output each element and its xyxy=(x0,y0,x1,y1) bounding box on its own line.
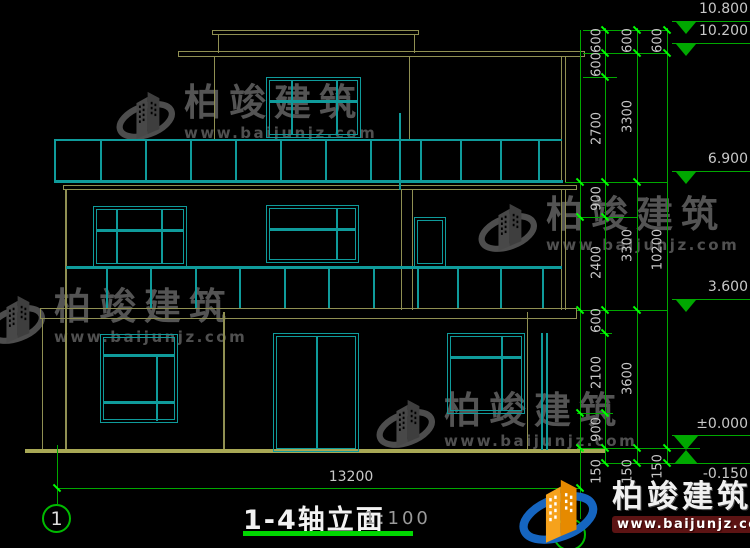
floor3-window-center xyxy=(266,205,359,263)
elevation-triangle-icon xyxy=(674,436,698,450)
elevation-triangle-icon xyxy=(676,44,696,56)
wall-line xyxy=(527,312,528,450)
axis-number: 1 xyxy=(50,508,62,530)
wall-line xyxy=(565,189,566,310)
railing-post xyxy=(328,269,330,308)
dimension-line xyxy=(580,30,581,519)
wall-line xyxy=(414,34,415,53)
brand-logo-icon xyxy=(514,470,606,546)
brand-logo: 柏竣建筑 www.baijunjz.com xyxy=(514,470,750,546)
chain-dimension-label: 2700 xyxy=(591,89,604,169)
railing-post xyxy=(373,269,375,308)
entry-door xyxy=(273,333,359,452)
elevation-label: 10.200 xyxy=(686,24,748,38)
railing-post xyxy=(106,269,108,308)
window-transom xyxy=(270,228,355,231)
corner-frame-line xyxy=(546,333,548,450)
floor2-window-left xyxy=(100,334,178,423)
band-mullion xyxy=(190,141,192,181)
wall-line xyxy=(565,56,566,182)
wall-line xyxy=(214,56,215,139)
window-transom xyxy=(104,401,174,404)
chain-dimension-label: 3300 xyxy=(622,77,635,157)
window-transom xyxy=(451,356,521,359)
elevation-triangle-icon xyxy=(676,172,696,184)
window-mullion xyxy=(156,354,158,421)
band-mullion xyxy=(500,141,502,181)
window-transom xyxy=(97,229,183,232)
corner-frame-line xyxy=(541,333,543,450)
main-roof-slab xyxy=(178,51,585,57)
axis-bubble-1: 1 xyxy=(42,504,71,533)
band-mullion xyxy=(325,141,327,181)
wall-line xyxy=(561,56,562,182)
floor3-window-small xyxy=(414,217,446,267)
window-mullion xyxy=(316,337,318,449)
window-inner-frame xyxy=(103,337,175,420)
wall-line xyxy=(409,56,410,139)
window-inner-frame xyxy=(269,208,356,260)
window-inner-frame xyxy=(417,220,443,264)
window-mullion xyxy=(336,81,338,135)
chain-dimension-label: 3300 xyxy=(622,206,635,286)
stair-edge-line xyxy=(399,113,401,190)
floor3-window-left xyxy=(93,206,187,267)
band-bottom-line xyxy=(54,180,563,183)
chain-dimension-label: 3600 xyxy=(622,339,635,419)
dimension-line xyxy=(605,28,606,464)
wall-line xyxy=(401,189,402,310)
chain-dimension-label: 600 xyxy=(622,1,635,81)
wall-line xyxy=(223,312,225,450)
penthouse-roof-slab xyxy=(212,30,419,35)
band-mullion xyxy=(280,141,282,181)
linework-layer: 6006002700900240060021009001506003300330… xyxy=(0,0,750,548)
elevation-label: 10.800 xyxy=(686,2,748,16)
window-mullion xyxy=(161,210,163,264)
window-mullion xyxy=(336,209,338,260)
third-floor-slab xyxy=(63,185,577,190)
elevation-label: ±0.000 xyxy=(686,417,748,431)
cad-elevation-drawing: 柏竣建筑 www.baijunjz.com 柏竣建筑 www.baijunjz.… xyxy=(0,0,750,548)
railing-post xyxy=(542,269,544,308)
band-mullion xyxy=(54,141,56,181)
chain-dimension-label: 10200 xyxy=(652,210,665,290)
window-inner-frame xyxy=(96,209,184,264)
wall-line xyxy=(42,318,43,450)
penthouse-window xyxy=(266,77,361,138)
railing-post xyxy=(195,269,197,308)
railing-post xyxy=(239,269,241,308)
second-floor-slab xyxy=(40,308,577,319)
window-mullion xyxy=(291,81,293,135)
wall-line xyxy=(561,189,562,310)
band-mullion xyxy=(235,141,237,181)
band-mullion xyxy=(370,141,372,181)
railing-post xyxy=(150,269,152,308)
bottom-dimension-line xyxy=(57,488,581,489)
railing-post xyxy=(284,269,286,308)
floor2-window-right xyxy=(447,333,525,414)
window-inner-frame xyxy=(269,80,358,135)
brand-url: www.baijunjz.com xyxy=(612,516,750,533)
title-underline xyxy=(243,531,413,536)
wall-line xyxy=(412,189,413,310)
elevation-label: 3.600 xyxy=(686,280,748,294)
band-mullion xyxy=(420,141,422,181)
window-inner-frame xyxy=(450,336,522,411)
band-top-line xyxy=(54,139,562,141)
band-mullion xyxy=(100,141,102,181)
brand-name: 柏竣建筑 xyxy=(612,482,750,513)
window-mullion xyxy=(501,337,503,411)
window-transom xyxy=(270,100,357,103)
band-mullion xyxy=(460,141,462,181)
band-mullion xyxy=(145,141,147,181)
elevation-label: 6.900 xyxy=(686,152,748,166)
railing-post xyxy=(457,269,459,308)
dimension-line xyxy=(667,28,668,464)
window-mullion xyxy=(116,210,118,264)
elevation-triangle-icon xyxy=(674,450,698,464)
window-transom xyxy=(104,354,174,357)
overall-width-dimension: 13200 xyxy=(316,470,386,484)
chain-dimension-label: 600 xyxy=(652,1,665,81)
band-mullion xyxy=(538,141,540,181)
drawing-scale: 1:100 xyxy=(364,508,431,529)
elevation-triangle-icon xyxy=(676,300,696,312)
dimension-line xyxy=(57,445,58,504)
dimension-line xyxy=(637,28,638,464)
wall-line xyxy=(218,34,219,53)
railing-post xyxy=(500,269,502,308)
railing-post xyxy=(417,269,419,308)
wall-line xyxy=(65,189,67,450)
